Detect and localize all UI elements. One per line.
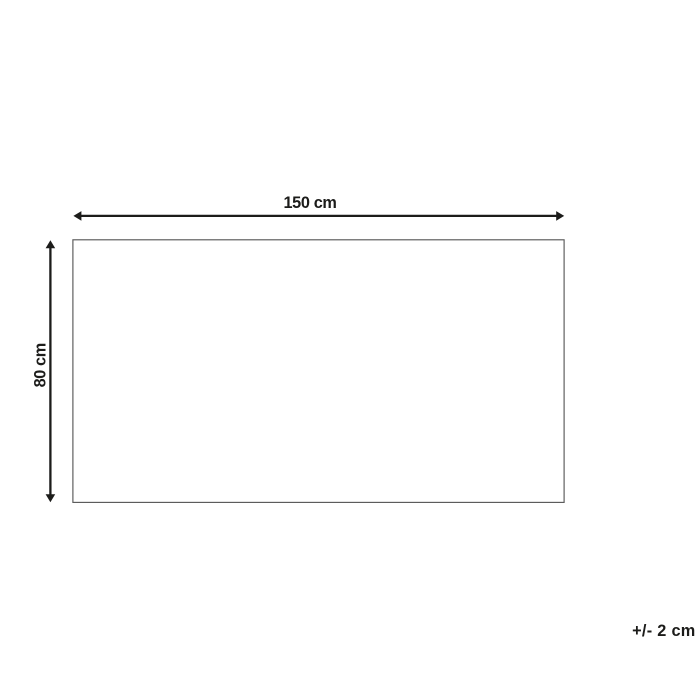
svg-text:80 cm: 80 cm <box>32 343 50 387</box>
svg-text:150 cm: 150 cm <box>283 194 336 212</box>
svg-text:+/- 2 cm: +/- 2 cm <box>632 622 696 640</box>
